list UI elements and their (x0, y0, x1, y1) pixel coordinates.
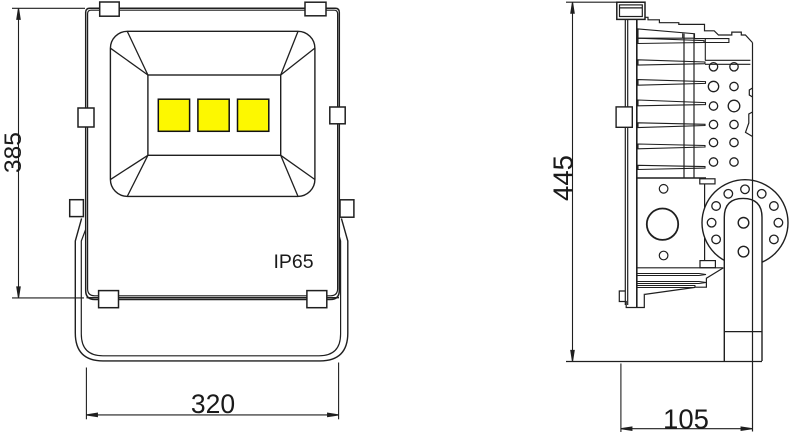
svg-text:320: 320 (191, 389, 235, 419)
svg-text:385: 385 (0, 132, 27, 173)
svg-text:445: 445 (548, 155, 579, 201)
svg-text:IP65: IP65 (273, 251, 313, 273)
svg-text:105: 105 (663, 403, 709, 432)
